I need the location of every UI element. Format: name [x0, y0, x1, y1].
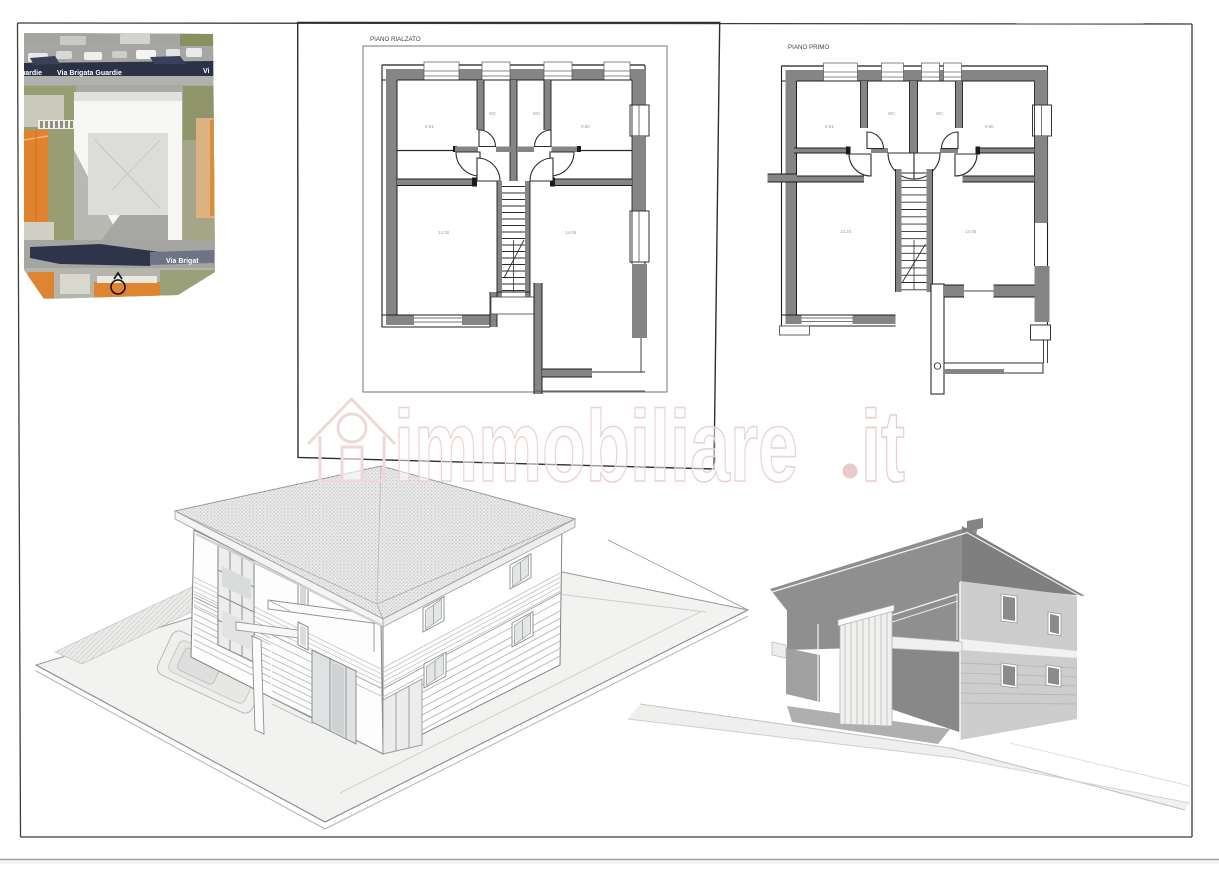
svg-text:immobiliare: immobiliare: [394, 390, 798, 503]
svg-text:it: it: [861, 390, 905, 503]
svg-text:WC: WC: [489, 111, 497, 116]
svg-text:9.80: 9.80: [985, 124, 994, 129]
svg-text:9.81: 9.81: [825, 124, 834, 129]
svg-text:Via Brigat: Via Brigat: [166, 258, 199, 265]
svg-text:9.80: 9.80: [581, 124, 590, 129]
svg-text:14.20: 14.20: [840, 229, 852, 234]
svg-text:WC: WC: [936, 111, 944, 116]
svg-text:14.20: 14.20: [438, 230, 450, 235]
svg-text:WC: WC: [888, 111, 896, 116]
svg-text:PIANO PRIMO: PIANO PRIMO: [788, 44, 829, 51]
svg-text:9.81: 9.81: [425, 124, 434, 129]
svg-text:14.05: 14.05: [565, 230, 577, 235]
svg-text:WC: WC: [533, 111, 541, 116]
svg-text:uardie: uardie: [21, 70, 42, 77]
svg-text:14.05: 14.05: [965, 229, 977, 234]
svg-text:PIANO RIALZATO: PIANO RIALZATO: [370, 36, 421, 43]
svg-text:Vi: Vi: [203, 68, 210, 75]
svg-text:Via Brigata Guardie: Via Brigata Guardie: [57, 70, 122, 77]
